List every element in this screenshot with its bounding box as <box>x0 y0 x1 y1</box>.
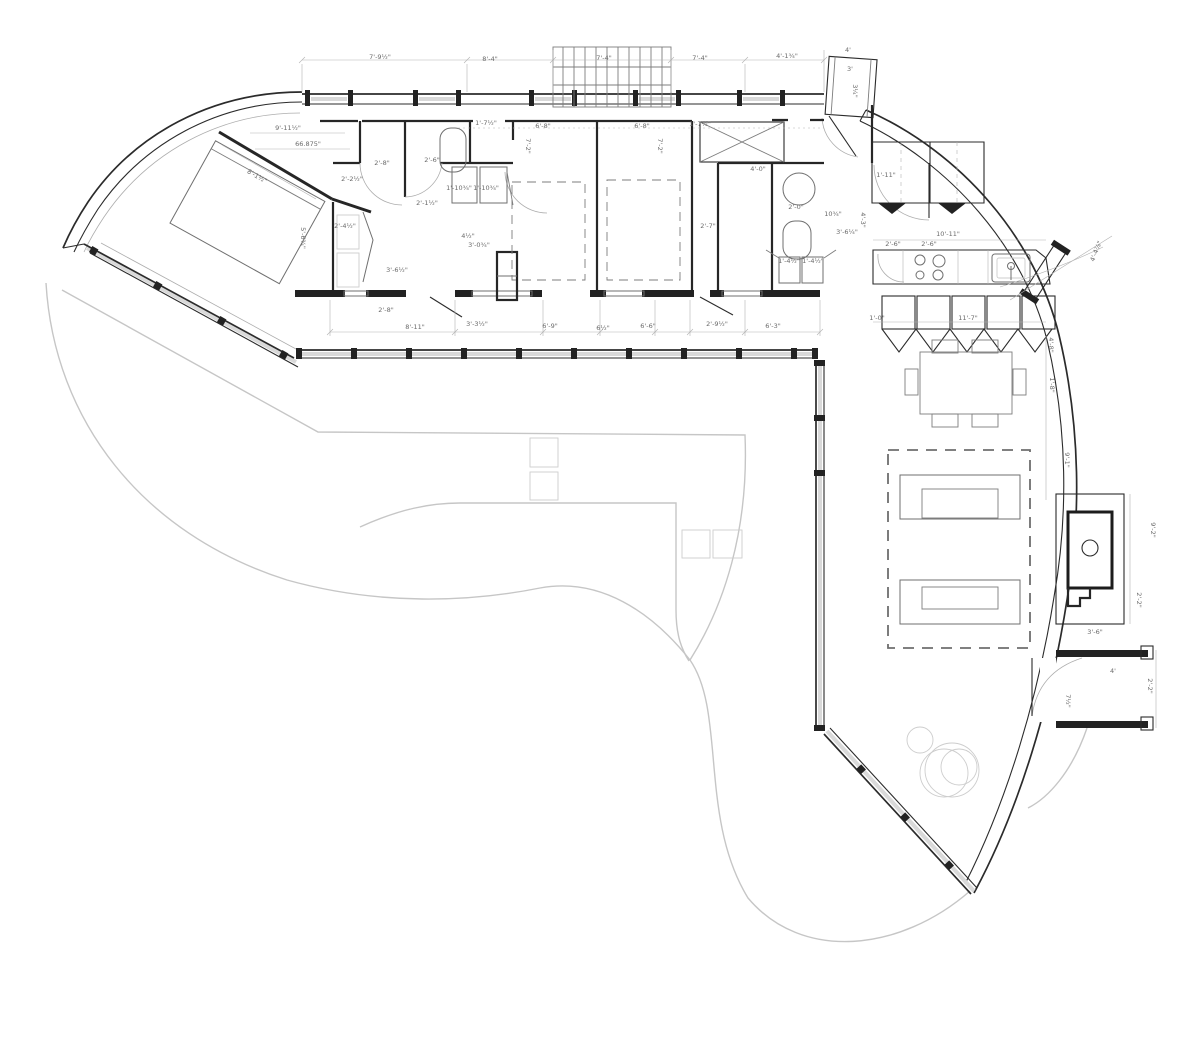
dimension-label: 3'-6¼" <box>836 228 858 236</box>
dimension-label: 3'-6" <box>1087 628 1102 636</box>
dimension-label: 3'-6½" <box>386 266 408 274</box>
dimension-label: 8'-4" <box>482 55 497 63</box>
bathroom-1 <box>440 128 513 205</box>
dining-table-set <box>905 340 1026 427</box>
dimension-label: 7'-2" <box>524 138 532 153</box>
planter-squares <box>530 438 742 558</box>
floor-plan-canvas: 7'-9½"8'-4"7'-4"7'-4"4'-1¾"4'3'3¼"9'-11½… <box>0 0 1200 1042</box>
living-area <box>888 450 1030 648</box>
kitchen-sink <box>992 254 1030 282</box>
dimension-label: 1'-4½" <box>778 257 800 265</box>
spa-circles <box>907 727 979 797</box>
dimension-label: 7'-4" <box>692 54 707 62</box>
dimension-label: 7'-9½" <box>369 53 391 61</box>
dimension-label: 10¾" <box>824 210 842 218</box>
dimension-lines <box>250 50 1156 728</box>
sofa <box>900 475 1020 519</box>
dimension-label: 8'-11" <box>405 323 425 331</box>
dimension-label: 1'-0" <box>869 314 884 322</box>
dimension-label: 5'-6¾" <box>299 227 307 249</box>
dimension-label: 2'-9½" <box>706 320 728 328</box>
dimension-label: 6'-3" <box>765 322 780 330</box>
hall-cabinet <box>497 252 517 300</box>
stove-burners <box>915 255 945 280</box>
dimension-label: 6'-9" <box>542 322 557 330</box>
dining-chair <box>972 414 998 427</box>
dimension-label: 3¼" <box>851 84 859 97</box>
dimension-label: 4'-4⅞" <box>1088 240 1104 263</box>
dimension-label: 11'-7" <box>958 314 978 322</box>
dimension-label: 1'-4½" <box>802 257 824 265</box>
dimension-label: 2'-8" <box>374 159 389 167</box>
dimension-label: 8'-1½" <box>246 167 269 185</box>
dimension-label: 4' <box>1110 667 1116 675</box>
dimension-label: 3'-3½" <box>466 320 488 328</box>
dimension-label: 1'-11" <box>876 171 896 179</box>
glass-wall-left-diagonal <box>84 243 307 367</box>
kitchen <box>872 142 1112 352</box>
dimension-label: 4'-1¾" <box>776 52 798 60</box>
rug-outline <box>888 450 1030 648</box>
dimension-label: 6'-8" <box>535 122 550 130</box>
dimension-label: 2'-0" <box>788 203 803 211</box>
dimension-label: 7'-4" <box>596 54 611 62</box>
glass-wall-east <box>814 360 825 731</box>
exterior-walls <box>63 92 1077 893</box>
dimension-label: 7½" <box>1064 694 1072 707</box>
dining-chair <box>932 340 958 353</box>
dimension-label: 4' <box>845 46 851 54</box>
dimension-label: 6'-8" <box>634 122 649 130</box>
dimension-label: 9'-1" <box>1063 452 1071 467</box>
dining-chair <box>905 369 918 395</box>
dimension-label: 1'-10¾" <box>473 184 499 192</box>
interior-walls <box>219 105 872 317</box>
kitchen-counter <box>873 250 1050 284</box>
dining-table <box>920 352 1012 414</box>
dimension-label: 2'-1½" <box>416 199 438 207</box>
dimension-label: 2'-4½" <box>334 222 356 230</box>
dimension-label: 2'-2" <box>1135 592 1143 607</box>
dimension-label: 2'-2" <box>1146 678 1154 693</box>
dimension-label: 1'-7½" <box>689 120 711 128</box>
glass-wall-bottom-diagonal <box>824 728 977 894</box>
dimension-label: 7'-2" <box>656 138 664 153</box>
dimension-label: 9'-2" <box>1149 522 1157 537</box>
drawing-sheet: 7'-9½"8'-4"7'-4"7'-4"4'-1¾"4'3'3¼"9'-11½… <box>0 0 1200 1042</box>
dimension-label: 4'-3" <box>859 212 867 227</box>
dimension-label: 10'-11" <box>936 230 960 238</box>
dimension-label: 2'-6" <box>424 156 439 164</box>
dimension-label: 1'-10¾" <box>446 184 472 192</box>
dimension-label: 4½" <box>461 232 474 240</box>
dimension-label: 3'-0¾" <box>468 241 490 249</box>
dimension-label: 3' <box>847 65 853 73</box>
dimension-label: 9'-11½" <box>275 124 301 132</box>
dimension-label: 4'-0" <box>750 165 765 173</box>
sofa <box>900 580 1020 624</box>
south-wall-segments <box>295 290 820 317</box>
dimension-label: 6'-6" <box>640 322 655 330</box>
dining-chair <box>932 414 958 427</box>
dimension-label: 1'-7½" <box>475 119 497 127</box>
bathroom-2 <box>766 173 836 283</box>
dimension-label: 4'-8" <box>1047 337 1055 352</box>
glass-wall-south <box>296 348 818 359</box>
east-entry <box>1032 646 1153 730</box>
dimension-label: 2'-2½" <box>341 175 363 183</box>
dimension-label: 2'-7" <box>700 222 715 230</box>
dining-chair <box>1013 369 1026 395</box>
dimension-label: 2'-6" <box>921 240 936 248</box>
dimension-label: 66.875" <box>295 140 321 148</box>
kitchen-base-cabinets <box>882 296 1055 352</box>
dimension-label: 2'-6" <box>885 240 900 248</box>
dimension-label: 1'-8" <box>1048 377 1056 392</box>
dimension-label: 6½" <box>596 324 609 332</box>
bed <box>170 141 325 284</box>
dimension-label: 2'-8" <box>378 306 393 314</box>
